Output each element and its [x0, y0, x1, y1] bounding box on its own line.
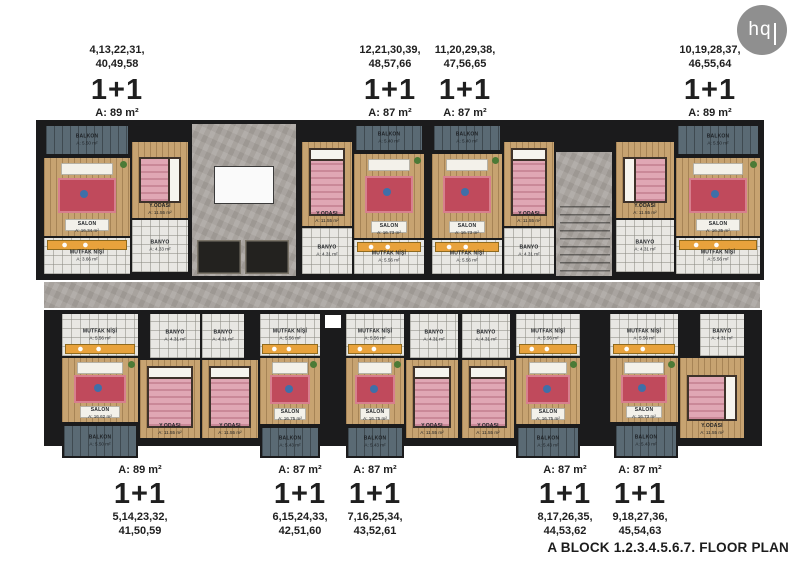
plant-icon — [570, 361, 577, 368]
duvet — [141, 159, 168, 201]
room-label: MUTFAK NİŞİA: 5.56 m² — [64, 329, 137, 340]
room-label-text: A: 16.62 m² — [64, 414, 137, 419]
room-label: MUTFAK NİŞİA: 3.66 m² — [46, 250, 129, 261]
rug — [270, 375, 311, 404]
pillow — [149, 368, 191, 377]
room-banyo: BANYOA: 4.31 m² — [150, 314, 200, 358]
room-label: Y.ODASIA: 11.55 m² — [141, 424, 199, 435]
room-banyo: BANYOA: 4.31 m² — [462, 314, 510, 358]
room-label-text: A: 16.75 m² — [517, 416, 578, 421]
room-label-text: A: 5.50 m² — [680, 140, 757, 145]
room-label: BALKONA: 5.40 m² — [357, 132, 420, 143]
room-label: SALONA: 16.73 m² — [611, 408, 676, 419]
shaft-void — [325, 315, 341, 328]
room-label-text: A: 16.35 m² — [678, 228, 759, 233]
room-label-text: A: 5.56 m² — [517, 335, 578, 340]
room-label-text: A: 5.40 m² — [357, 138, 420, 143]
plant-icon — [310, 361, 317, 368]
room-label: SALONA: 16.73 m² — [355, 224, 422, 235]
room-label-text: A: 11.55 m² — [407, 430, 457, 435]
room-bedroom: Y.ODASIA: 11.55 m² — [504, 142, 554, 226]
sofa — [693, 163, 743, 175]
duvet — [636, 159, 665, 201]
room-bedroom: Y.ODASIA: 11.55 m² — [202, 360, 258, 438]
room-label: BANYOA: 4.31 m² — [701, 329, 743, 340]
unit-area: A: 89 m² — [112, 464, 167, 476]
room-label: MUTFAK NİŞİA: 5.56 m² — [433, 251, 500, 262]
unit-label-bottom-5: A: 87 m² 1+1 9,18,27,36, 45,54,63 — [612, 464, 667, 539]
duvet — [471, 379, 505, 426]
room-label: BANYOA: 4.33 m² — [133, 240, 187, 251]
room-label: BANYOA: 4.31 m² — [151, 330, 199, 341]
rug — [365, 176, 413, 213]
room-label: BALKONA: 5.50 m² — [48, 134, 127, 145]
rug — [355, 375, 394, 404]
room-salon: SALONA: 16.75 m² — [346, 358, 404, 424]
bed — [309, 148, 345, 216]
plant-icon — [668, 361, 675, 368]
room-label-text: A: 5.43 m² — [349, 442, 401, 447]
room-label-text: A: 4.31 m² — [151, 336, 199, 341]
unit-numbers: 5,14,23,32, 41,50,59 — [112, 511, 167, 539]
stairs — [560, 206, 610, 274]
unit-area: A: 87 m² — [612, 464, 667, 476]
room-label: SALONA: 16.75 m² — [347, 410, 403, 421]
pillow — [513, 150, 545, 159]
sofa — [624, 362, 665, 374]
bed — [469, 366, 507, 428]
room-bedroom: Y.ODASIA: 11.55 m² — [406, 360, 458, 438]
room-label: BANYOA: 4.31 m² — [411, 330, 457, 341]
room-banyo: BANYOA: 4.31 m² — [616, 220, 674, 272]
room-bedroom: Y.ODASIA: 11.55 m² — [616, 142, 674, 218]
room-label: BALKONA: 5.50 m² — [65, 435, 134, 446]
room-label: BALKONA: 5.43 m² — [519, 436, 577, 447]
bed — [623, 157, 667, 203]
room-label: Y.ODASIA: 11.55 m² — [617, 204, 673, 215]
kitchen-counter — [348, 344, 401, 354]
room-banyo: BANYOA: 4.33 m² — [132, 220, 188, 272]
room-label-text: A: 5.56 m² — [261, 335, 319, 340]
room-label-text: A: 5.43 m² — [519, 442, 577, 447]
room-label: MUTFAK NİŞİA: 5.56 m² — [261, 329, 319, 340]
rug-pattern — [383, 188, 391, 196]
room-label: SALONA: 16.35 m² — [678, 222, 759, 233]
room-label: Y.ODASIA: 11.55 m² — [505, 212, 553, 223]
room-salon: SALONA: 16.34 m² — [44, 158, 130, 236]
plant-icon — [492, 157, 499, 164]
room-label-text: A: 5.56 m² — [347, 335, 403, 340]
room-label-text: A: 5.40 m² — [435, 138, 498, 143]
room-kitchen: MUTFAK NİŞİA: 5.56 m² — [260, 314, 320, 356]
room-label: BALKONA: 5.43 m² — [617, 435, 675, 446]
room-label: BALKONA: 5.43 m² — [263, 436, 317, 447]
room-label: BANYOA: 4.31 m² — [203, 330, 243, 341]
room-label-text: A: 5.56 m² — [355, 257, 422, 262]
unit-type: 1+1 — [112, 479, 167, 509]
rug-pattern — [638, 384, 646, 392]
room-kitchen: MUTFAK NİŞİA: 5.56 m² — [354, 240, 424, 274]
room-label-text: A: 4.31 m² — [617, 246, 673, 251]
room-bedroom: Y.ODASIA: 11.55 m² — [302, 142, 352, 226]
room-label-text: A: 16.73 m² — [433, 230, 500, 235]
room-label-text: A: 5.50 m² — [65, 441, 134, 446]
room-label: Y.ODASIA: 11.55 m² — [407, 424, 457, 435]
room-bedroom: Y.ODASIA: 11.55 m² — [462, 360, 514, 438]
room-label: MUTFAK NİŞİA: 5.56 m² — [611, 329, 676, 340]
room-kitchen: MUTFAK NİŞİA: 5.56 m² — [610, 314, 678, 356]
stair-void — [214, 166, 274, 204]
unit-label-bottom-3: A: 87 m² 1+1 7,16,25,34, 43,52,61 — [347, 464, 402, 539]
unit-area: A: 87 m² — [347, 464, 402, 476]
kitchen-counter — [613, 344, 676, 354]
rug — [621, 375, 667, 403]
kitchen-counter — [262, 344, 317, 354]
room-kitchen: MUTFAK NİŞİA: 5.56 m² — [346, 314, 404, 356]
room-label-text: A: 4.31 m² — [411, 336, 457, 341]
room-label-text: A: 16.34 m² — [46, 228, 129, 233]
room-salon: SALONA: 16.75 m² — [516, 358, 580, 424]
room-label-text: A: 16.75 m² — [261, 416, 319, 421]
corridor — [44, 282, 760, 308]
room-label: MUTFAK NİŞİA: 5.56 m² — [678, 250, 759, 261]
unit-area: A: 87 m² — [272, 464, 327, 476]
bed — [139, 157, 181, 203]
unit-label-bottom-4: A: 87 m² 1+1 8,17,26,35, 44,53,62 — [537, 464, 592, 539]
room-label-text: A: 4.33 m² — [133, 246, 187, 251]
room-kitchen: MUTFAK NİŞİA: 5.56 m² — [432, 240, 502, 274]
room-banyo: BANYOA: 4.31 m² — [202, 314, 244, 358]
room-label-text: A: 5.50 m² — [48, 140, 127, 145]
room-label-text: A: 5.43 m² — [263, 442, 317, 447]
room-banyo: BANYOA: 4.31 m² — [410, 314, 458, 358]
unit-area: A: 87 m² — [537, 464, 592, 476]
rug-pattern — [94, 384, 102, 392]
bed — [147, 366, 193, 428]
pillow — [471, 368, 505, 377]
room-bedroom: Y.ODASIA: 11.55 m² — [140, 360, 200, 438]
room-label: BALKONA: 5.40 m² — [435, 132, 498, 143]
rug-pattern — [461, 188, 469, 196]
unit-type: 1+1 — [347, 479, 402, 509]
pillow — [625, 159, 634, 201]
room-kitchen: MUTFAK NİŞİA: 5.56 m² — [516, 314, 580, 356]
unit-numbers: 9,18,27,36, 45,54,63 — [612, 511, 667, 539]
room-label: SALONA: 16.75 m² — [517, 410, 578, 421]
room-label: MUTFAK NİŞİA: 5.56 m² — [347, 329, 403, 340]
room-label: SALONA: 16.73 m² — [433, 224, 500, 235]
room-banyo: BANYOA: 4.31 m² — [302, 228, 352, 274]
room-label: BANYOA: 4.31 m² — [505, 245, 553, 256]
room-label-text: A: 5.56 m² — [433, 257, 500, 262]
room-salon: SALONA: 16.62 m² — [62, 358, 138, 422]
duvet — [689, 377, 724, 419]
room-label: SALONA: 16.62 m² — [64, 408, 137, 419]
plant-icon — [750, 161, 757, 168]
room-balcony: BALKONA: 5.43 m² — [516, 426, 580, 458]
room-label: BALKONA: 5.43 m² — [349, 436, 401, 447]
rug-pattern — [543, 385, 551, 393]
room-balcony: BALKONA: 5.40 m² — [432, 124, 502, 152]
room-kitchen: MUTFAK NİŞİA: 5.56 m² — [62, 314, 138, 356]
room-label: SALONA: 16.34 m² — [46, 222, 129, 233]
room-balcony: BALKONA: 5.40 m² — [354, 124, 424, 152]
elevator — [197, 240, 241, 274]
room-label-text: A: 4.31 m² — [203, 336, 243, 341]
room-salon: SALONA: 16.73 m² — [432, 154, 502, 238]
room-banyo: BANYOA: 4.31 m² — [700, 314, 744, 356]
sofa — [529, 362, 567, 374]
unit-numbers: 8,17,26,35, 44,53,62 — [537, 511, 592, 539]
unit-numbers: 6,15,24,33, 42,51,60 — [272, 511, 327, 539]
room-bedroom: Y.ODASIA: 11.55 m² — [680, 358, 744, 438]
room-label-text: A: 11.55 m² — [203, 430, 257, 435]
bed — [209, 366, 251, 428]
room-label-text: A: 11.55 m² — [141, 430, 199, 435]
room-salon: SALONA: 16.73 m² — [354, 154, 424, 238]
bed — [687, 375, 737, 421]
pillow — [311, 150, 343, 159]
duvet — [149, 379, 191, 426]
room-label-text: A: 5.56 m² — [611, 335, 676, 340]
room-bedroom: Y.ODASIA: 11.55 m² — [132, 142, 188, 218]
plant-icon — [394, 361, 401, 368]
pillow — [726, 377, 735, 419]
room-label: BALKONA: 5.50 m² — [680, 134, 757, 145]
room-label-text: A: 3.66 m² — [46, 256, 129, 261]
rug-pattern — [370, 385, 378, 393]
pillow — [170, 159, 179, 201]
kitchen-counter — [65, 344, 135, 354]
room-label-text: A: 5.56 m² — [678, 256, 759, 261]
rug — [689, 178, 746, 212]
sofa — [446, 159, 488, 171]
room-label-text: A: 11.55 m² — [133, 210, 187, 215]
sofa — [77, 362, 123, 374]
room-label-text: A: 4.31 m² — [701, 335, 743, 340]
room-label: Y.ODASIA: 11.55 m² — [133, 204, 187, 215]
unit-numbers: 7,16,25,34, 43,52,61 — [347, 511, 402, 539]
floor-plan-sheet: hq 4,13,22,31, 40,49,58 1+1 A: 89 m² 12,… — [0, 0, 800, 565]
room-label-text: A: 4.31 m² — [463, 336, 509, 341]
unit-label-bottom-1: A: 89 m² 1+1 5,14,23,32, 41,50,59 — [112, 464, 167, 539]
unit-type: 1+1 — [272, 479, 327, 509]
bed — [413, 366, 451, 428]
rug — [526, 375, 570, 404]
rug-pattern — [711, 190, 719, 198]
rug — [74, 375, 126, 403]
room-label: Y.ODASIA: 11.55 m² — [303, 212, 351, 223]
room-label: SALONA: 16.75 m² — [261, 410, 319, 421]
room-kitchen: MUTFAK NİŞİA: 3.66 m² — [44, 238, 130, 274]
duvet — [513, 161, 545, 214]
room-label-text: A: 16.75 m² — [347, 416, 403, 421]
bed — [511, 148, 547, 216]
rug — [443, 176, 491, 213]
room-label-text: A: 11.55 m² — [617, 210, 673, 215]
rug-pattern — [285, 385, 293, 393]
pillow — [211, 368, 249, 377]
room-label-text: A: 11.55 m² — [505, 218, 553, 223]
room-kitchen: MUTFAK NİŞİA: 5.56 m² — [676, 238, 760, 274]
room-label-text: A: 5.43 m² — [617, 441, 675, 446]
room-salon: SALONA: 16.75 m² — [260, 358, 320, 424]
unit-type: 1+1 — [537, 479, 592, 509]
sofa — [61, 163, 113, 175]
room-label-text: A: 11.55 m² — [303, 218, 351, 223]
room-label: BANYOA: 4.31 m² — [617, 240, 673, 251]
room-label-text: A: 4.31 m² — [303, 251, 351, 256]
plant-icon — [414, 157, 421, 164]
room-label-text: A: 11.55 m² — [681, 430, 742, 435]
unit-type: 1+1 — [612, 479, 667, 509]
room-salon: SALONA: 16.35 m² — [676, 158, 760, 236]
room-label-text: A: 5.56 m² — [64, 335, 137, 340]
room-label: MUTFAK NİŞİA: 5.56 m² — [355, 251, 422, 262]
duvet — [415, 379, 449, 426]
pillow — [415, 368, 449, 377]
room-banyo: BANYOA: 4.31 m² — [504, 228, 554, 274]
room-balcony: BALKONA: 5.43 m² — [346, 426, 404, 458]
room-balcony: BALKONA: 5.43 m² — [614, 424, 678, 458]
elevator — [245, 240, 289, 274]
duvet — [211, 379, 249, 426]
room-label-text: A: 4.31 m² — [505, 251, 553, 256]
kitchen-counter — [519, 344, 578, 354]
duvet — [311, 161, 343, 214]
sofa — [358, 362, 393, 374]
room-balcony: BALKONA: 5.50 m² — [44, 124, 130, 156]
room-balcony: BALKONA: 5.50 m² — [676, 124, 760, 156]
sofa — [368, 159, 410, 171]
room-label: MUTFAK NİŞİA: 5.56 m² — [517, 329, 578, 340]
room-label-text: A: 11.55 m² — [463, 430, 513, 435]
plant-icon — [120, 161, 127, 168]
shaft — [322, 312, 344, 444]
sofa — [272, 362, 308, 374]
plant-icon — [128, 361, 135, 368]
unit-label-bottom-2: A: 87 m² 1+1 6,15,24,33, 42,51,60 — [272, 464, 327, 539]
room-label: Y.ODASIA: 11.55 m² — [463, 424, 513, 435]
room-balcony: BALKONA: 5.43 m² — [260, 426, 320, 458]
room-label: Y.ODASIA: 11.55 m² — [681, 424, 742, 435]
room-label: BANYOA: 4.31 m² — [463, 330, 509, 341]
room-balcony: BALKONA: 5.50 m² — [62, 424, 138, 458]
plan-caption: A BLOCK 1.2.3.4.5.6.7. FLOOR PLAN — [547, 540, 789, 555]
room-label-text: A: 16.73 m² — [355, 230, 422, 235]
room-salon: SALONA: 16.73 m² — [610, 358, 678, 422]
rug-pattern — [80, 190, 88, 198]
rug — [58, 178, 116, 212]
room-label: BANYOA: 4.31 m² — [303, 245, 351, 256]
room-label: Y.ODASIA: 11.55 m² — [203, 424, 257, 435]
room-label-text: A: 16.73 m² — [611, 414, 676, 419]
